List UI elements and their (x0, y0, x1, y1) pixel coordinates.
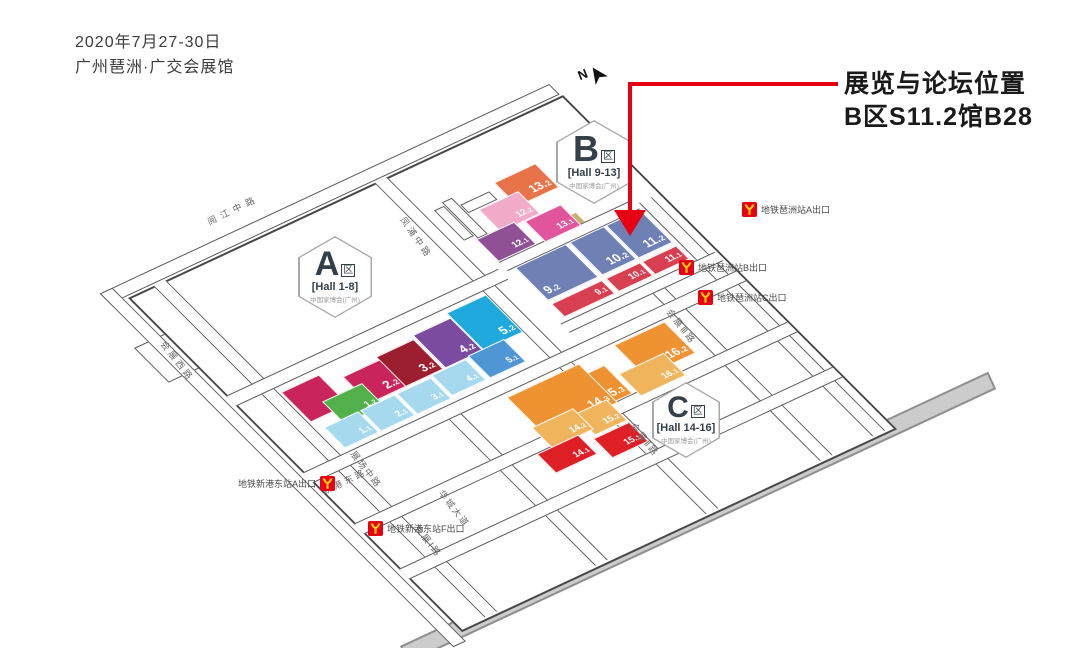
zone-hall-range: [Hall 1-8] (312, 281, 358, 293)
metro-logo-icon (679, 260, 694, 275)
zone-hall-range: [Hall 9-13] (568, 167, 621, 179)
map-scene: 2.23.24.25.21.21.12.13.14.15.19.210.211.… (128, 97, 890, 629)
zone-badge-A: A 区 [Hall 1-8] 中国家博会(广州) (298, 236, 372, 318)
location-arrow-head (614, 210, 646, 236)
metro-exit-label: 地铁琶洲站B出口 (698, 261, 767, 274)
zone-suffix: 区 (601, 150, 615, 163)
metro-logo-icon (368, 521, 383, 536)
zone-badge-content: C 区 [Hall 14-16] 中国家博会(广州) (652, 382, 720, 458)
zone-hall-range: [Hall 14-16] (657, 422, 716, 434)
zone-badge-content: A 区 [Hall 1-8] 中国家博会(广州) (298, 236, 372, 318)
event-dates: 2020年7月27-30日 (75, 28, 221, 52)
zone-suffix: 区 (691, 405, 705, 418)
metro-logo-icon (698, 290, 713, 305)
location-arrow-line (632, 82, 838, 86)
metro-exit-xingangdong-f: 地铁新港东站F出口 (368, 521, 465, 536)
callout-location: B区S11.2馆B28 (844, 97, 1033, 133)
callout-title: 展览与论坛位置 (844, 64, 1026, 100)
zone-badge-C: C 区 [Hall 14-16] 中国家博会(广州) (652, 382, 720, 458)
venue-map: 2020年7月27-30日 广州琶洲·广交会展馆 展览与论坛位置 B区S11.2… (0, 0, 1080, 648)
zone-badge-content: B 区 [Hall 9-13] 中国家博会(广州) (556, 120, 632, 204)
zone-subtitle: 中国家博会(广州) (310, 294, 360, 304)
metro-exit-xingangdong-a: 地铁新港东站A出口 (238, 476, 335, 491)
metro-exit-label: 地铁新港东站F出口 (387, 522, 465, 535)
zone-letter: A (315, 250, 340, 279)
north-arrow-icon (586, 63, 610, 87)
zone-letter: B (573, 134, 599, 165)
metro-logo-icon (320, 476, 335, 491)
north-indicator: N (578, 66, 606, 83)
event-venue: 广州琶洲·广交会展馆 (75, 53, 234, 77)
metro-exit-label: 地铁琶洲站A出口 (761, 203, 830, 216)
metro-exit-pazhou-a: 地铁琶洲站A出口 (742, 202, 830, 217)
metro-exit-pazhou-b: 地铁琶洲站B出口 (679, 260, 767, 275)
zone-suffix: 区 (341, 264, 355, 277)
metro-exit-label: 地铁新港东站A出口 (238, 477, 316, 490)
zone-letter: C (667, 395, 689, 421)
zone-badge-B: B 区 [Hall 9-13] 中国家博会(广州) (556, 120, 632, 204)
zone-subtitle: 中国家博会(广州) (569, 180, 619, 190)
metro-logo-icon (742, 202, 757, 217)
metro-exit-pazhou-c: 地铁琶洲站C出口 (698, 290, 787, 305)
metro-exit-label: 地铁琶洲站C出口 (717, 291, 787, 304)
location-arrow-line (628, 82, 632, 212)
zone-subtitle: 中国家博会(广州) (661, 435, 711, 445)
